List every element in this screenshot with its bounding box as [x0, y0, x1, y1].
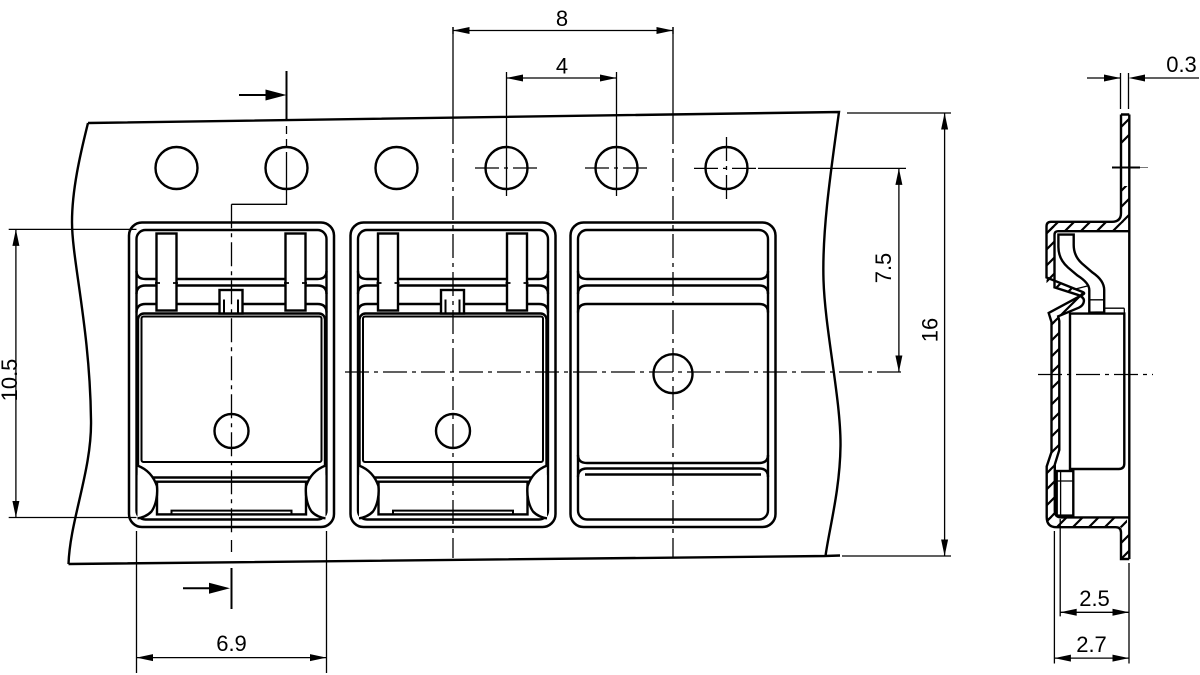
- svg-text:2.5: 2.5: [1079, 586, 1110, 611]
- svg-text:0.3: 0.3: [1166, 52, 1197, 77]
- svg-text:16: 16: [918, 318, 943, 342]
- svg-text:8: 8: [556, 6, 568, 31]
- svg-text:4: 4: [556, 54, 568, 79]
- svg-text:2.7: 2.7: [1076, 632, 1107, 657]
- svg-text:10.5: 10.5: [0, 359, 22, 402]
- svg-text:6.9: 6.9: [216, 631, 247, 656]
- svg-text:7.5: 7.5: [871, 253, 896, 284]
